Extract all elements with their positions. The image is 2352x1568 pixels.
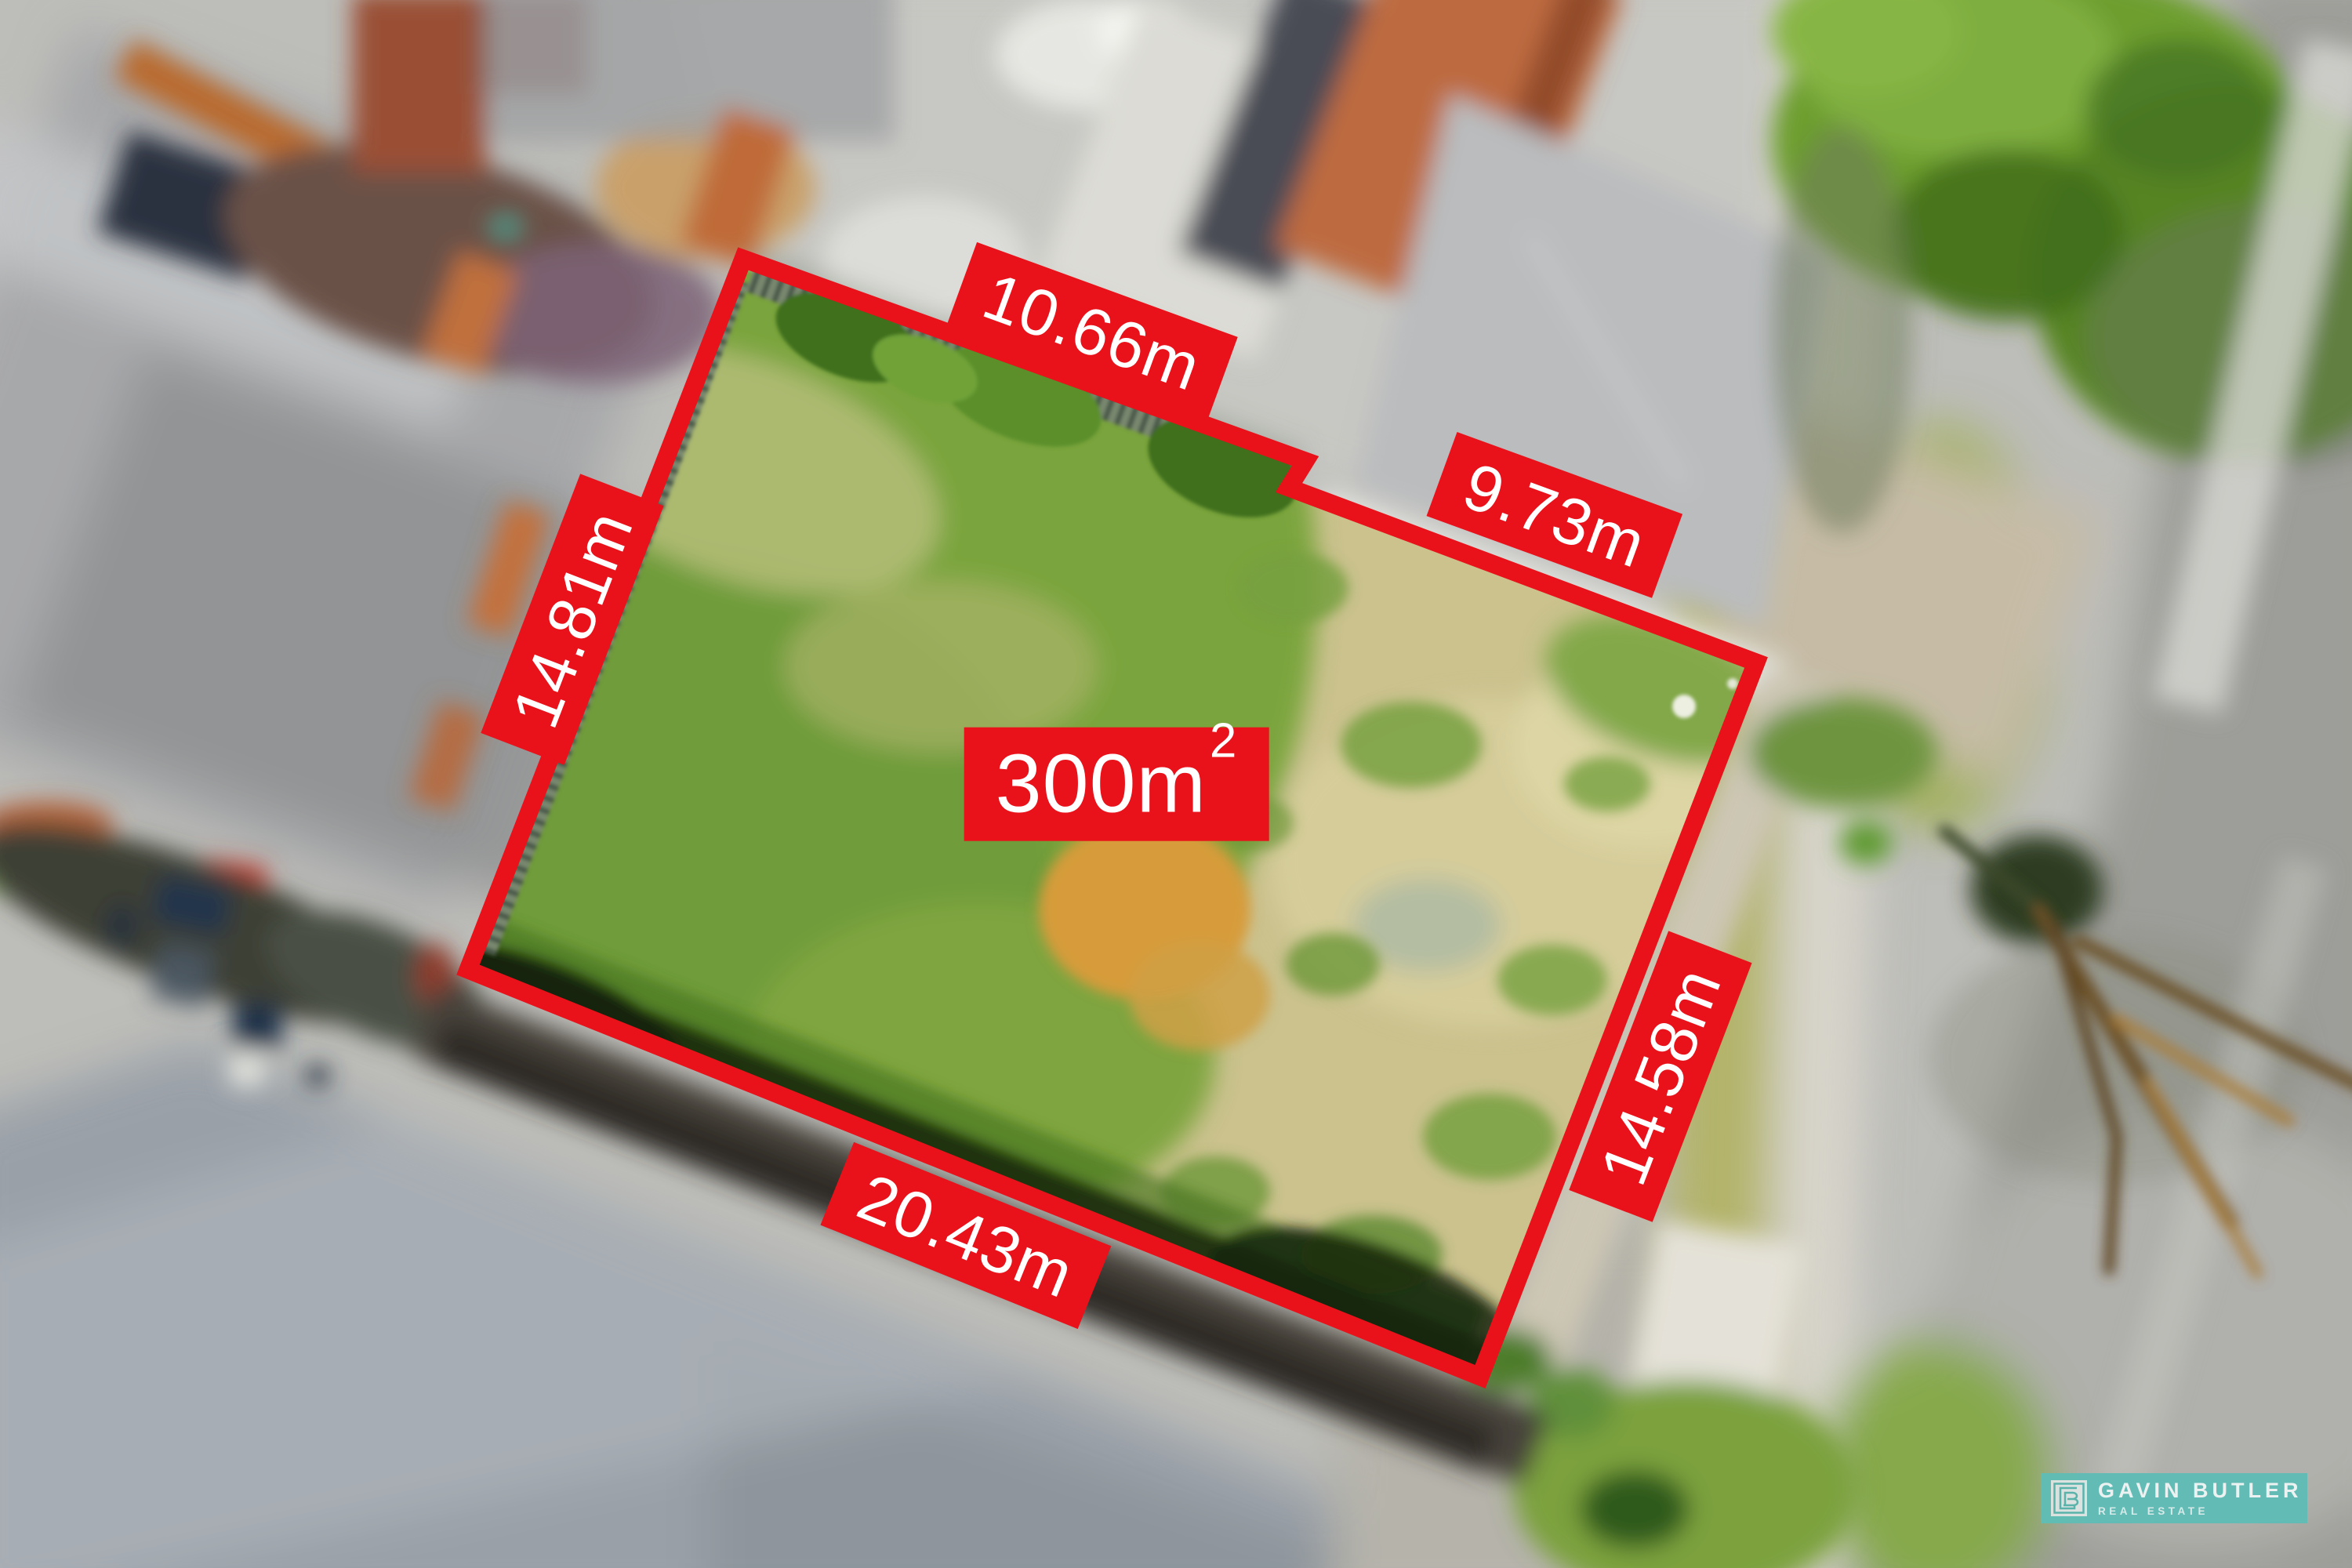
area-label: 300m2 [964,728,1269,841]
listing-photo: 10.66m 9.73m 14.81m 14.58m 20.43m 300m2 … [0,0,2352,1568]
agency-tagline: REAL ESTATE [2098,1505,2303,1517]
area-superscript: 2 [1210,713,1237,768]
area-value: 300m [996,738,1207,830]
agency-logo: GAVIN BUTLER REAL ESTATE [2041,1473,2307,1523]
agency-name: GAVIN BUTLER [2098,1479,2303,1503]
agency-logo-icon [2051,1480,2087,1516]
